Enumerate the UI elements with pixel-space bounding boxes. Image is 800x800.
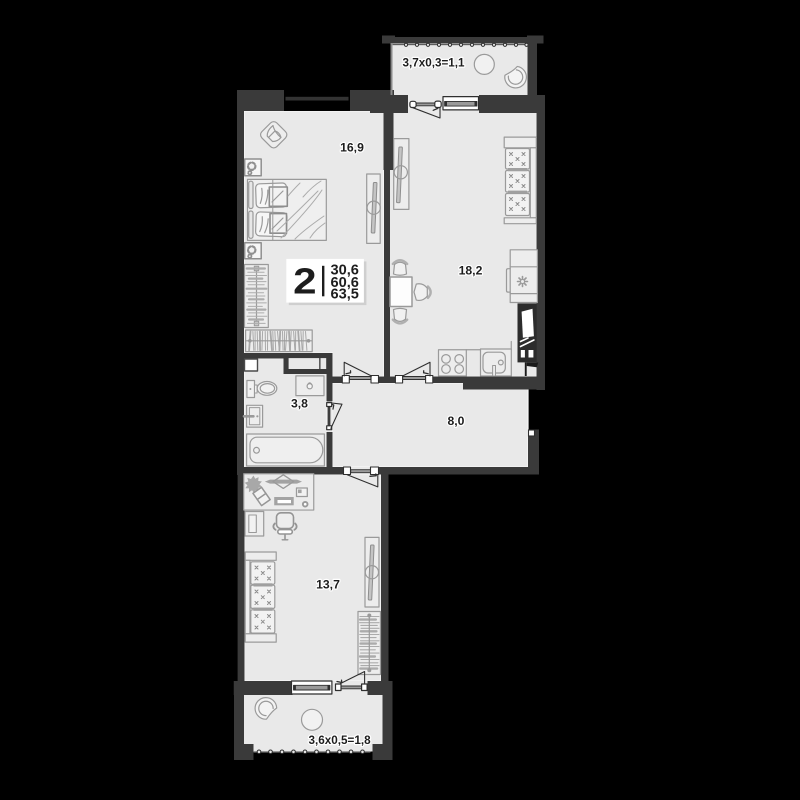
svg-text:2: 2 xyxy=(293,262,316,302)
svg-text:16,9: 16,9 xyxy=(340,141,364,155)
svg-text:3,7x0,3=1,1: 3,7x0,3=1,1 xyxy=(402,57,465,70)
svg-text:8,0: 8,0 xyxy=(448,414,465,428)
svg-text:63,5: 63,5 xyxy=(331,286,359,302)
svg-text:3,8: 3,8 xyxy=(291,397,308,411)
svg-text:3,6x0,5=1,8: 3,6x0,5=1,8 xyxy=(309,734,372,747)
svg-text:18,2: 18,2 xyxy=(459,263,483,277)
svg-text:13,7: 13,7 xyxy=(316,577,340,591)
